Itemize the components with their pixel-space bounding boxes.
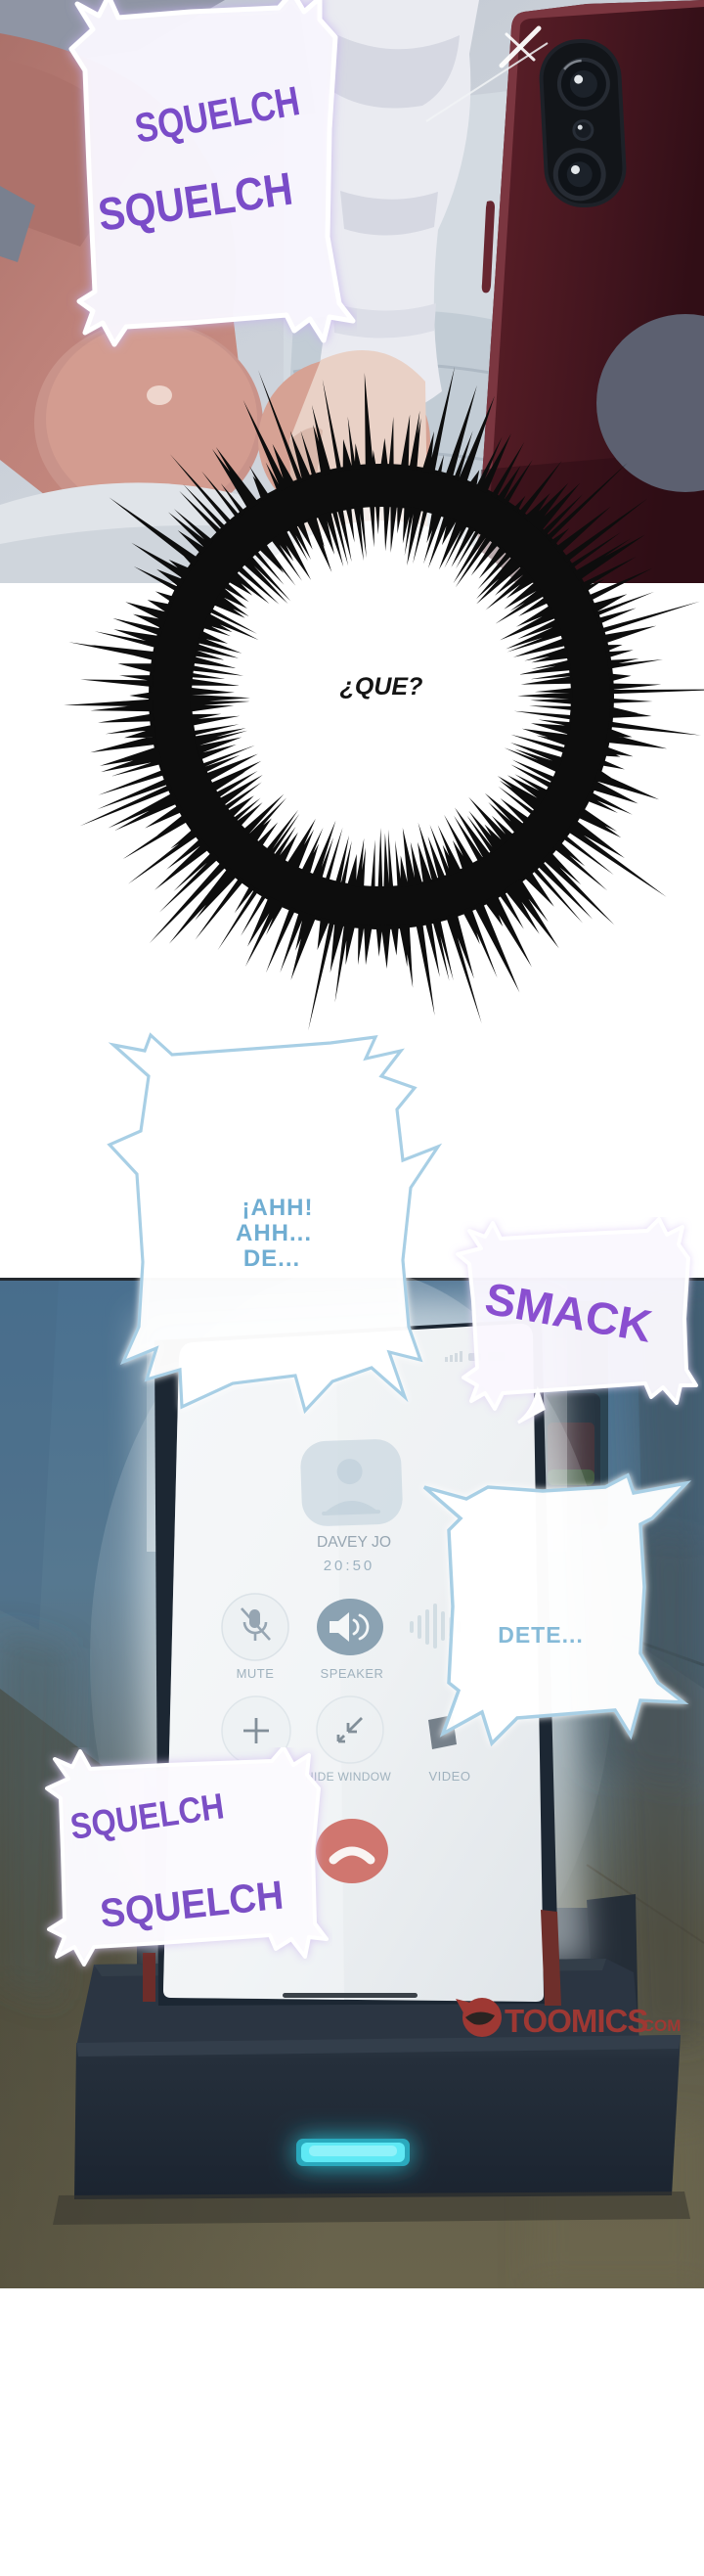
- svg-text:¿QUE?: ¿QUE?: [340, 673, 423, 700]
- svg-text:VIDEO: VIDEO: [429, 1769, 471, 1784]
- svg-text:¡AHH!: ¡AHH!: [242, 1195, 314, 1221]
- svg-text:20:50: 20:50: [324, 1558, 375, 1574]
- svg-text:.COM: .COM: [638, 2016, 681, 2035]
- svg-text:SPEAKER: SPEAKER: [321, 1666, 384, 1681]
- svg-text:DAVEY JO: DAVEY JO: [317, 1534, 391, 1551]
- svg-text:AHH...: AHH...: [236, 1220, 312, 1246]
- svg-text:TOOMICS: TOOMICS: [505, 2003, 647, 2039]
- svg-text:MUTE: MUTE: [237, 1666, 275, 1681]
- svg-text:DE...: DE...: [243, 1245, 300, 1272]
- svg-text:DETE...: DETE...: [498, 1622, 584, 1648]
